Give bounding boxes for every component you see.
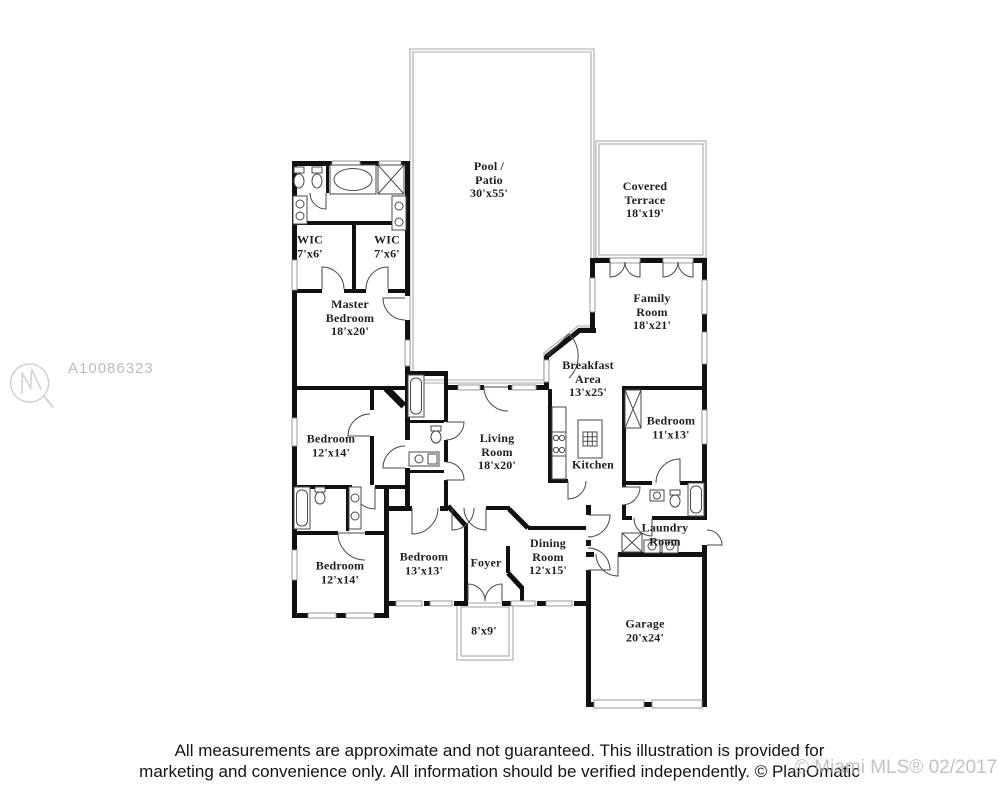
bathtub-icon (688, 483, 704, 516)
toilet-icon (431, 426, 441, 443)
bathtub-icon (330, 165, 376, 194)
vanity-sink-icon (392, 196, 406, 230)
bathtub-icon (408, 375, 424, 417)
floor-plan-drawing (0, 0, 999, 786)
vanity-sink-icon (349, 487, 361, 529)
pool-patio-outline (410, 49, 594, 383)
shower-icon (378, 165, 404, 194)
toilet-icon (294, 167, 304, 188)
dryer-icon (662, 540, 678, 553)
toilet-icon (315, 487, 325, 504)
washer-icon (644, 540, 660, 553)
toilet-icon (670, 490, 680, 507)
kitchen-island (578, 420, 602, 458)
vanity-sink-icon (293, 196, 307, 224)
entry-porch-outline (457, 603, 513, 660)
watermark: A10086323 (10, 360, 154, 377)
walls (292, 161, 707, 707)
mls-watermark-text: © Miami MLS® 02/2017 (795, 757, 997, 779)
bathtub-icon (294, 487, 310, 529)
floor-plan-page: Pool / Patio 30'x55'Covered Terrace 18'x… (0, 0, 999, 786)
covered-terrace-outline (596, 141, 706, 258)
stove-icon (552, 432, 566, 456)
closet-icon (625, 390, 641, 428)
bidet-icon (312, 167, 322, 188)
vanity-sink-icon (409, 452, 439, 466)
sink-icon (650, 490, 664, 501)
closet-icon (622, 533, 642, 552)
listing-id: A10086323 (68, 360, 154, 377)
